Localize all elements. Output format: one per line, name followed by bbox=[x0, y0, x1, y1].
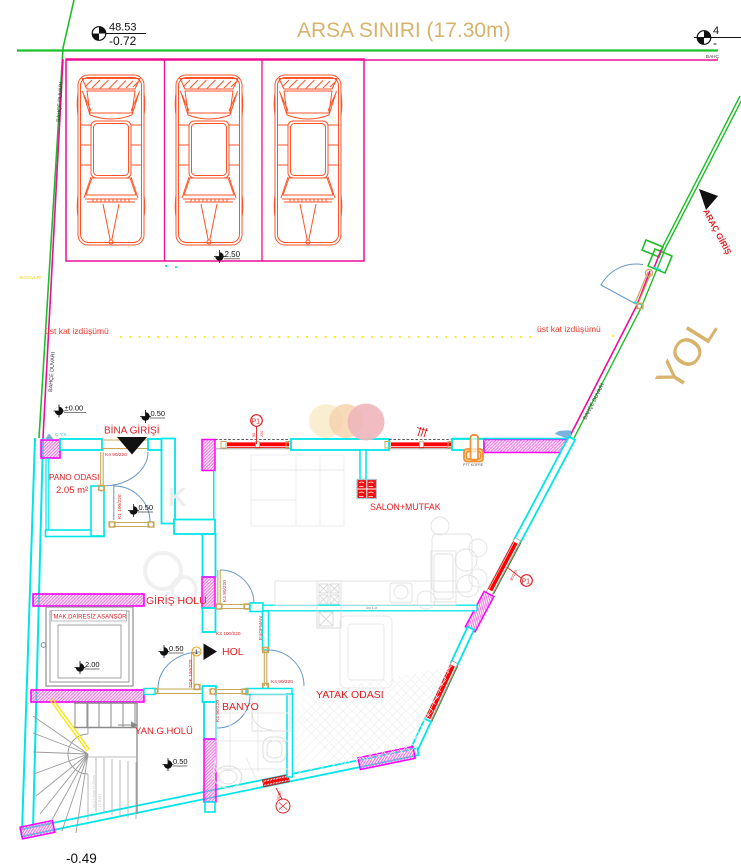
svg-text:90: 90 bbox=[252, 433, 256, 437]
svg-text:BAHÇ: BAHÇ bbox=[706, 54, 719, 59]
svg-text:P1: P1 bbox=[522, 579, 531, 586]
svg-text:P1: P1 bbox=[252, 419, 261, 426]
svg-text:MAK.DAİRESİZ ASANSÖR: MAK.DAİRESİZ ASANSÖR bbox=[54, 613, 128, 620]
svg-text:0.50: 0.50 bbox=[173, 757, 188, 766]
svg-text:K1 100/220: K1 100/220 bbox=[117, 494, 123, 519]
svg-text:0.50: 0.50 bbox=[151, 409, 166, 418]
svg-text:2.50: 2.50 bbox=[225, 250, 241, 259]
svg-text:K4 90/220: K4 90/220 bbox=[271, 679, 293, 685]
svg-text:B.DUVARI: B.DUVARI bbox=[20, 275, 41, 280]
svg-text:0.50: 0.50 bbox=[139, 503, 154, 512]
svg-text:üst kat izdüşümü: üst kat izdüşümü bbox=[537, 324, 601, 334]
svg-text:2.05 m²: 2.05 m² bbox=[56, 485, 88, 496]
svg-text:W:17.5cm H:25cm: W:17.5cm H:25cm bbox=[91, 775, 96, 808]
svg-text:BANYO: BANYO bbox=[222, 701, 259, 713]
svg-text:üst k.iz: üst k.iz bbox=[366, 606, 377, 610]
svg-text:-0.49: -0.49 bbox=[66, 851, 97, 865]
svg-text:K4 90/220: K4 90/220 bbox=[222, 580, 228, 602]
svg-text:EŞOFMAN: EŞOFMAN bbox=[258, 616, 264, 640]
svg-text:-0.72: -0.72 bbox=[109, 34, 137, 48]
svg-text:17 RIHT: 17 RIHT bbox=[97, 793, 102, 808]
svg-text:K4 90/220: K4 90/220 bbox=[215, 700, 221, 722]
svg-text:üst kat izdüşümü: üst kat izdüşümü bbox=[45, 326, 109, 336]
svg-text:SALON+MUTFAK: SALON+MUTFAK bbox=[370, 502, 441, 512]
svg-text:PANO ODASI: PANO ODASI bbox=[49, 473, 99, 482]
svg-text:ARSA SINIRI (17.30m): ARSA SINIRI (17.30m) bbox=[297, 19, 511, 42]
svg-text:±0.00: ±0.00 bbox=[65, 404, 84, 413]
svg-text:K3 100/220: K3 100/220 bbox=[216, 631, 241, 637]
svg-text:K: K bbox=[168, 482, 187, 512]
svg-text:BİNA GİRİŞİ: BİNA GİRİŞİ bbox=[104, 424, 160, 437]
svg-text:YATAK ODASI: YATAK ODASI bbox=[316, 689, 384, 701]
svg-text:48.53: 48.53 bbox=[109, 22, 137, 34]
svg-text:Ç.Y.S: Ç.Y.S bbox=[55, 432, 66, 437]
svg-text:-: - bbox=[713, 36, 717, 50]
svg-text:GİRİŞ HOLÜ: GİRİŞ HOLÜ bbox=[146, 594, 207, 607]
svg-text:220: 220 bbox=[260, 431, 264, 437]
svg-text:YAN.G.HOLÜ: YAN.G.HOLÜ bbox=[135, 726, 193, 737]
svg-text:TOK 100/220: TOK 100/220 bbox=[188, 659, 194, 688]
svg-text:HOL: HOL bbox=[222, 646, 244, 658]
svg-text:PTT KOFRE: PTT KOFRE bbox=[463, 463, 484, 467]
svg-text:0.50: 0.50 bbox=[169, 644, 184, 653]
svg-text:K4 90/220: K4 90/220 bbox=[105, 452, 127, 458]
svg-text:2.00: 2.00 bbox=[85, 660, 100, 669]
